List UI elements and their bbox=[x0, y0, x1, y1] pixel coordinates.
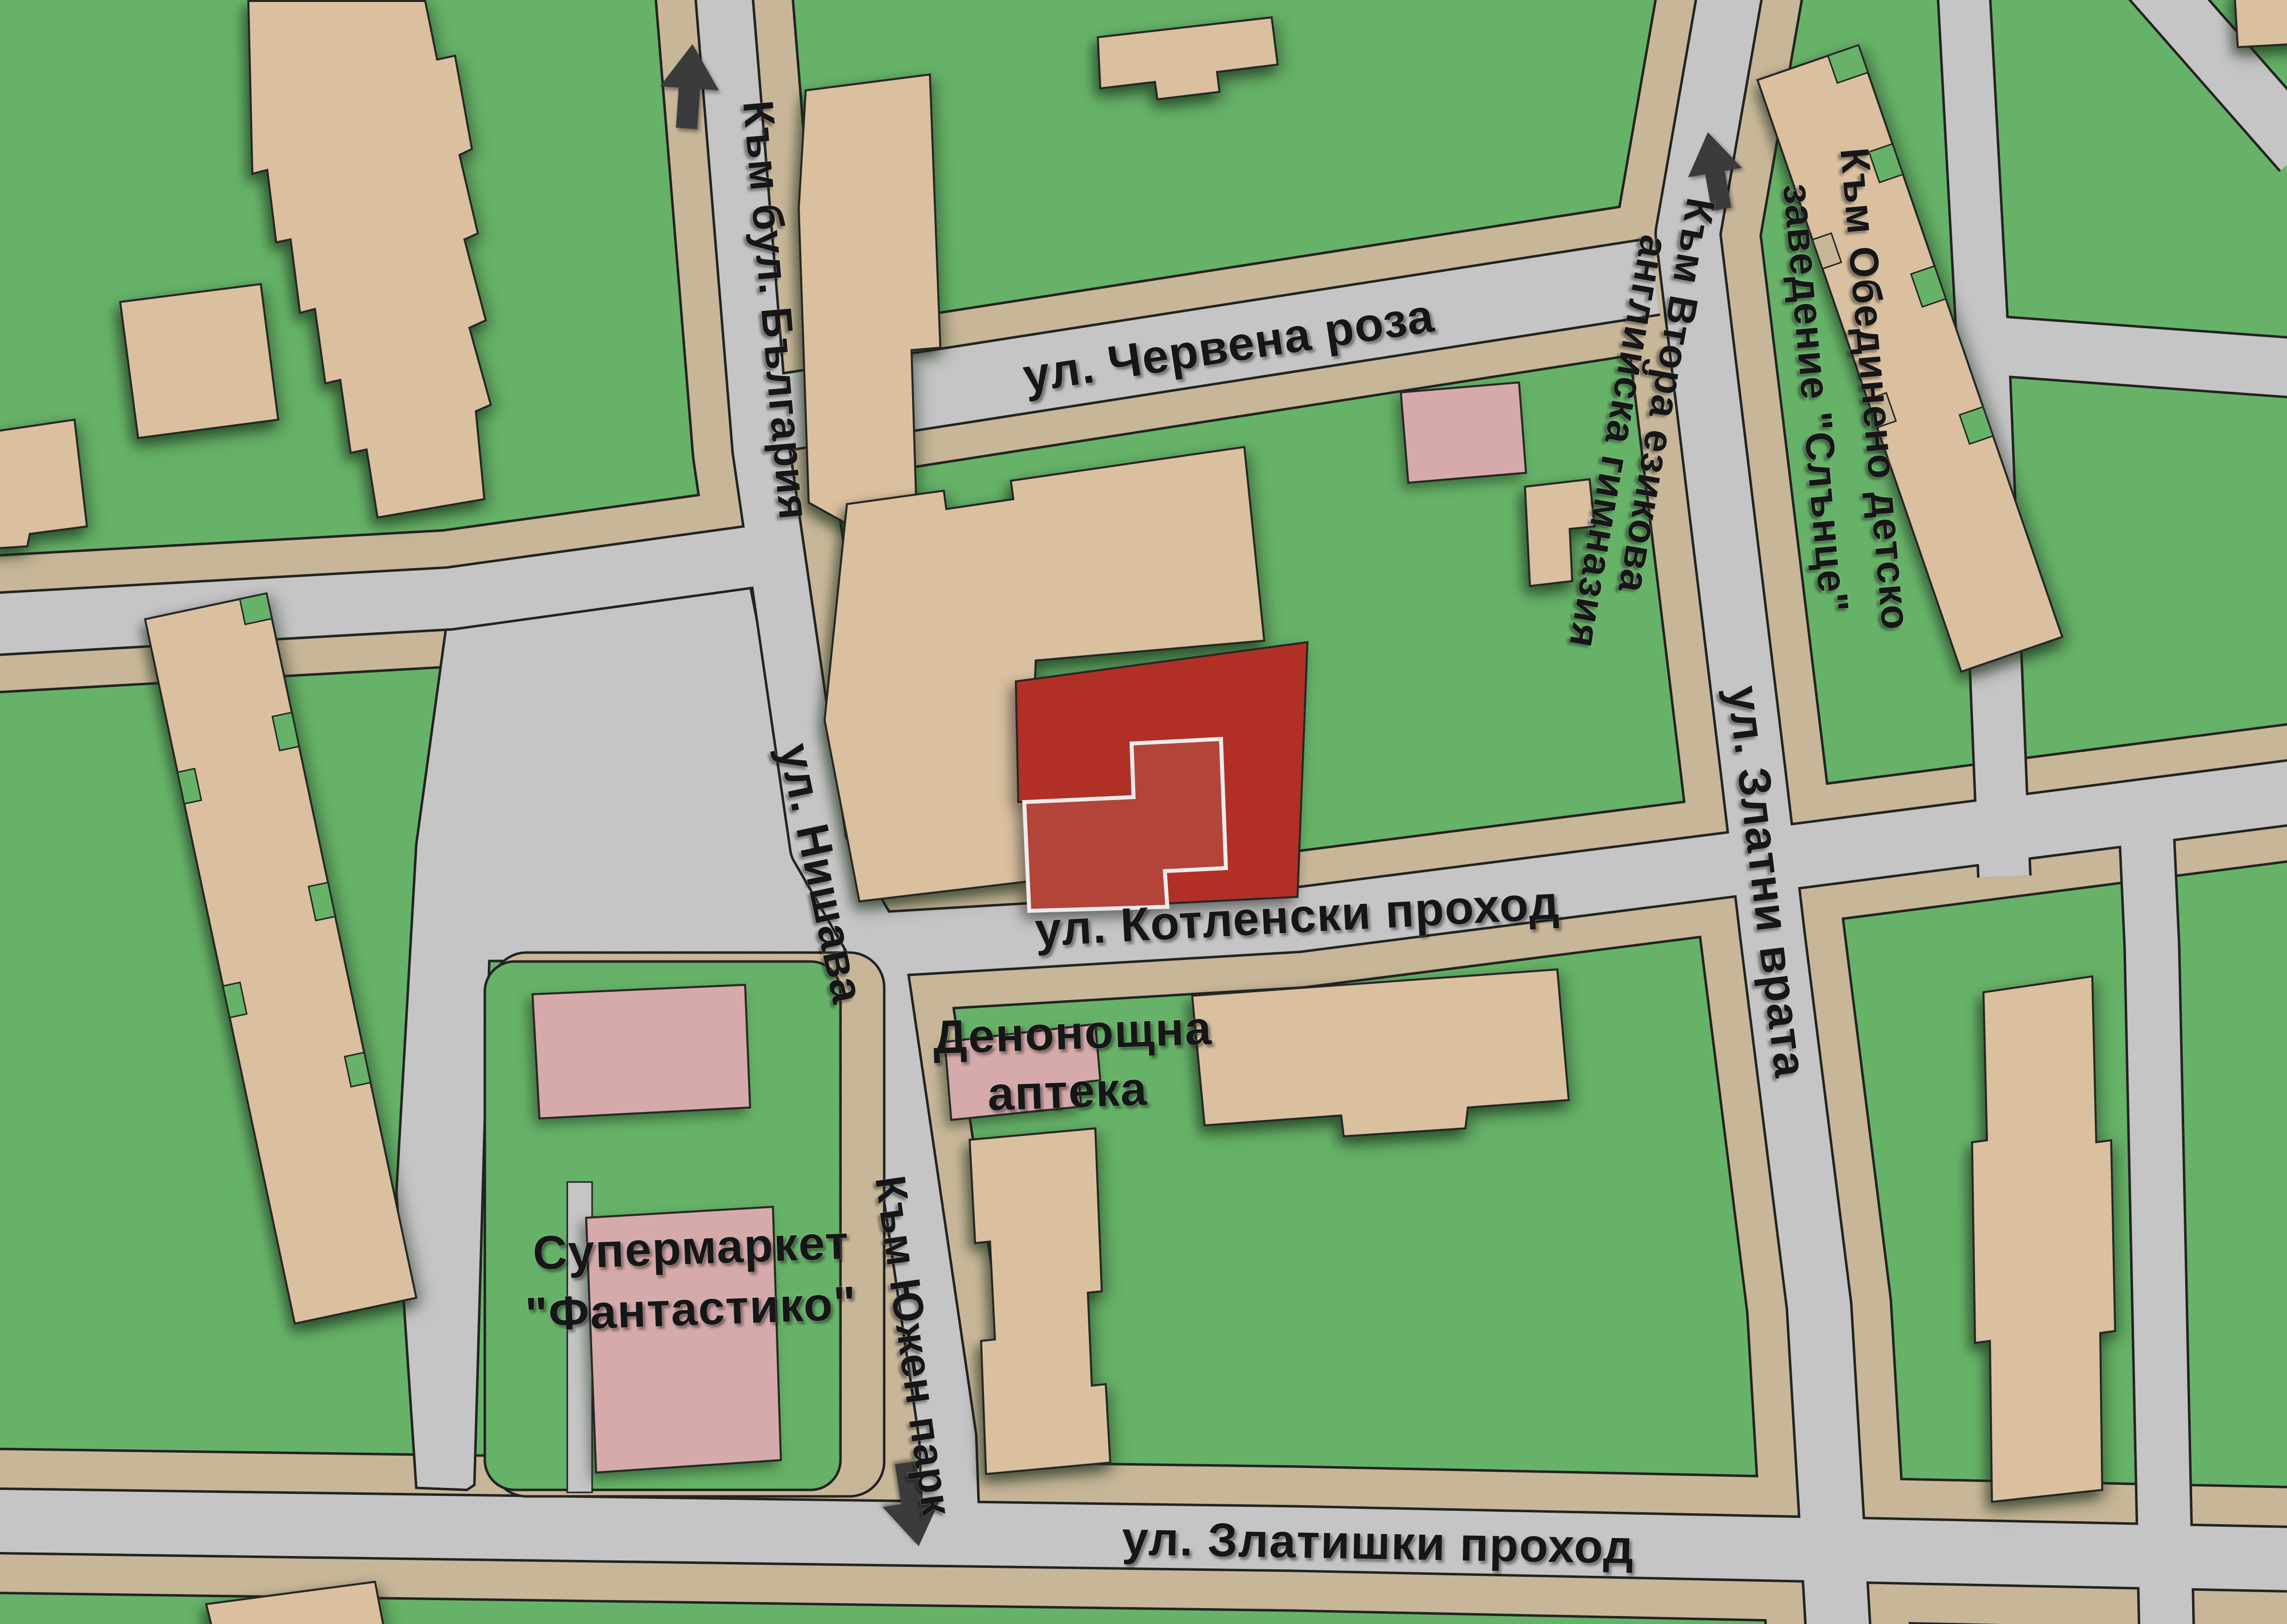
label-zlatishki: ул. Златишки проход bbox=[1122, 1512, 1635, 1574]
label-supermarket-1: Супермаркет bbox=[532, 1216, 850, 1280]
label-pharmacy-1: Денонощна bbox=[932, 1001, 1213, 1064]
label-pharmacy-2: аптека bbox=[987, 1062, 1148, 1120]
paper-texture bbox=[0, 0, 2287, 1624]
city-map: Към бул. България ул. Червена роза Към В… bbox=[0, 0, 2287, 1624]
